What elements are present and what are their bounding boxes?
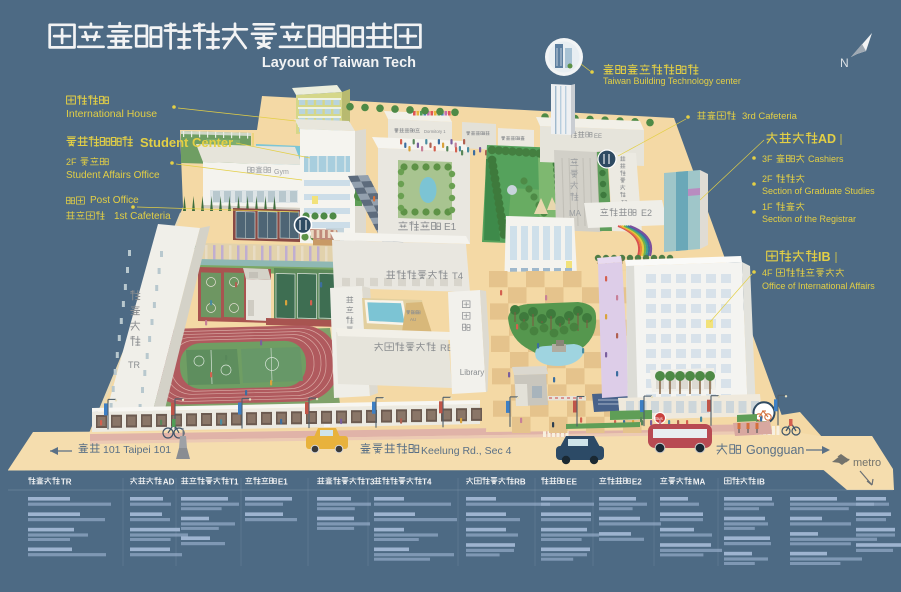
svg-text:T4: T4	[422, 478, 432, 487]
svg-text:101 Taipei 101: 101 Taipei 101	[103, 444, 171, 456]
svg-text:Section of the Registrar: Section of the Registrar	[762, 214, 856, 224]
svg-text:Student Affairs Office: Student Affairs Office	[66, 170, 160, 181]
svg-text:Gongguan: Gongguan	[746, 443, 804, 457]
svg-text:Taiwan Building Technology cen: Taiwan Building Technology center	[603, 76, 741, 86]
svg-text:Section of Graduate Studies: Section of Graduate Studies	[762, 186, 875, 196]
svg-text:RB: RB	[514, 478, 526, 487]
svg-text:1st Cafeteria: 1st Cafeteria	[114, 211, 171, 222]
svg-text:E2: E2	[641, 208, 652, 218]
svg-text:1F: 1F	[762, 202, 773, 212]
svg-text:Cashiers: Cashiers	[808, 154, 844, 164]
svg-text:IB: IB	[757, 478, 765, 487]
svg-text:E1: E1	[444, 222, 457, 233]
svg-text:EE: EE	[566, 478, 577, 487]
svg-text:AD: AD	[163, 478, 175, 487]
svg-text:TR: TR	[128, 360, 140, 370]
svg-text:3rd Cafeteria: 3rd Cafeteria	[742, 111, 798, 122]
svg-text:4F: 4F	[762, 268, 773, 278]
svg-text:metro: metro	[853, 457, 881, 469]
svg-text:TR: TR	[61, 478, 72, 487]
svg-text:EE: EE	[594, 134, 602, 140]
svg-text:Dormitory 1: Dormitory 1	[424, 129, 446, 134]
svg-text:Keelung Rd., Sec 4: Keelung Rd., Sec 4	[421, 445, 512, 457]
svg-text:E1: E1	[278, 478, 288, 487]
svg-text:Student Center: Student Center	[140, 135, 233, 150]
svg-text:Layout of Taiwan Tech: Layout of Taiwan Tech	[262, 55, 416, 71]
svg-text:T1: T1	[229, 478, 239, 487]
svg-text:2F: 2F	[66, 157, 77, 167]
svg-text:Post Office: Post Office	[90, 195, 139, 206]
svg-text:Library: Library	[460, 368, 484, 377]
svg-text:Gym: Gym	[274, 169, 289, 176]
svg-text:2F: 2F	[762, 174, 773, 184]
svg-text:3F: 3F	[762, 154, 773, 164]
svg-text:N: N	[840, 56, 849, 70]
svg-text:T3: T3	[365, 478, 375, 487]
svg-text:E2: E2	[632, 478, 642, 487]
svg-text:MA: MA	[693, 478, 706, 487]
svg-text:MA: MA	[569, 209, 582, 218]
svg-text:AU: AU	[410, 317, 416, 322]
svg-text:IB: IB	[818, 250, 831, 264]
svg-text:Office of International Affair: Office of International Affairs	[762, 281, 875, 291]
svg-text:Bus: Bus	[655, 416, 664, 421]
svg-text:T4: T4	[452, 271, 463, 282]
svg-text:International House: International House	[66, 108, 157, 120]
svg-text:AD: AD	[818, 132, 836, 146]
